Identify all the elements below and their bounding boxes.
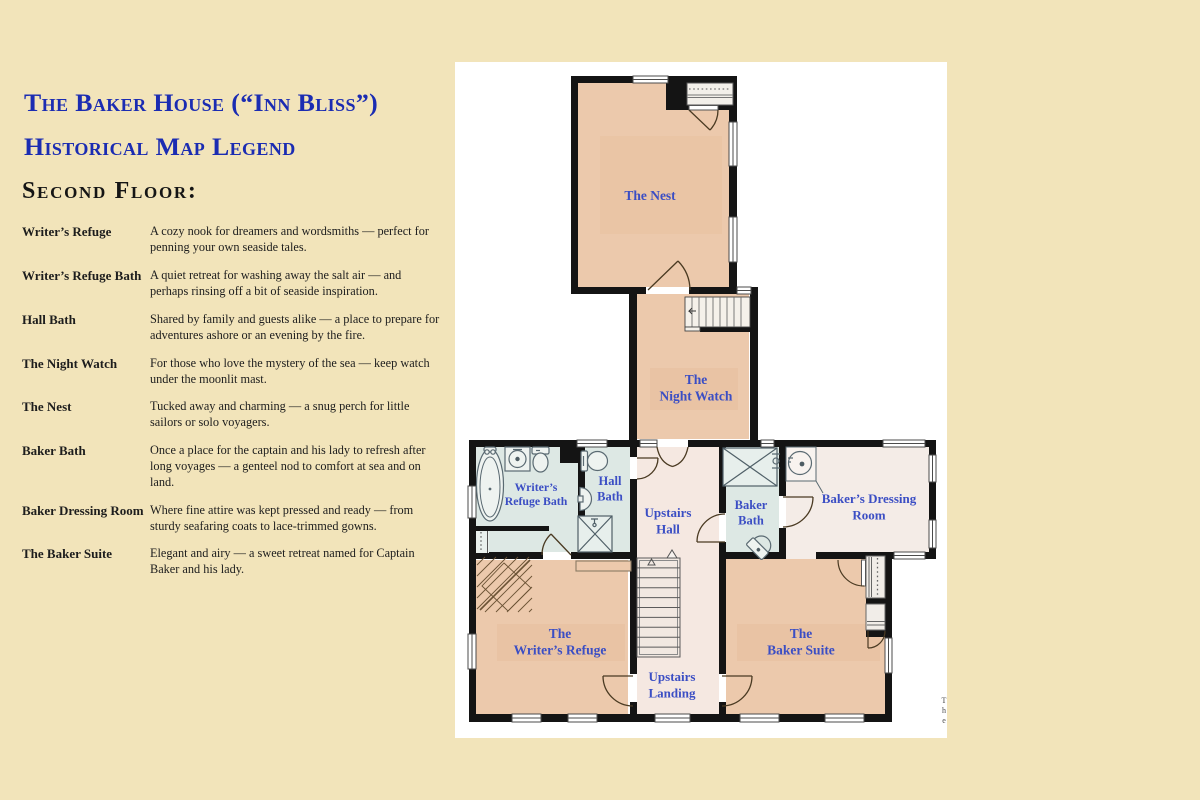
svg-text:Baker’s Dressing: Baker’s Dressing bbox=[822, 491, 917, 506]
svg-text:Writer’s Refuge: Writer’s Refuge bbox=[514, 643, 607, 658]
svg-text:Hall: Hall bbox=[599, 474, 622, 488]
svg-text:Refuge Bath: Refuge Bath bbox=[505, 494, 568, 508]
svg-text:Bath: Bath bbox=[738, 514, 764, 528]
svg-text:Baker Suite: Baker Suite bbox=[767, 643, 835, 658]
svg-text:Writer’s: Writer’s bbox=[515, 480, 558, 494]
svg-text:Upstairs: Upstairs bbox=[649, 669, 696, 684]
svg-text:Upstairs: Upstairs bbox=[645, 505, 692, 520]
svg-text:Baker: Baker bbox=[735, 498, 768, 512]
svg-text:The Nest: The Nest bbox=[624, 188, 676, 203]
svg-text:Room: Room bbox=[852, 508, 885, 523]
svg-text:The: The bbox=[685, 372, 708, 387]
svg-text:Hall: Hall bbox=[656, 522, 680, 537]
svg-text:The: The bbox=[549, 626, 572, 641]
svg-text:Night Watch: Night Watch bbox=[660, 389, 733, 404]
svg-text:The: The bbox=[790, 626, 813, 641]
svg-text:Landing: Landing bbox=[649, 686, 696, 701]
svg-text:Bath: Bath bbox=[597, 490, 623, 504]
